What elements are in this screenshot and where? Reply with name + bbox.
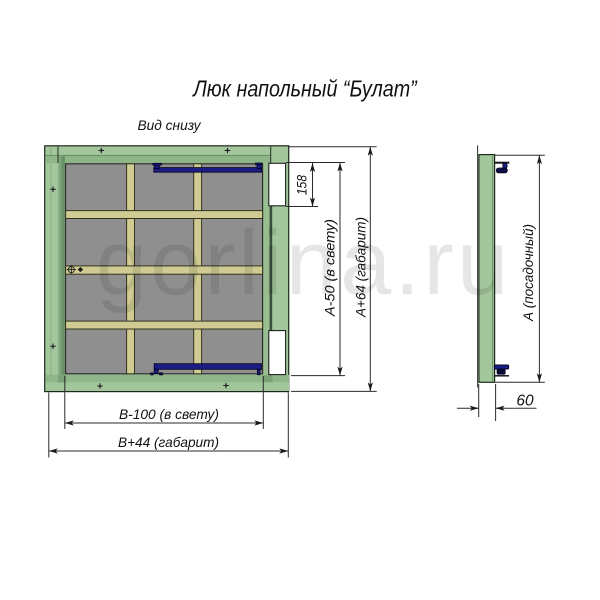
svg-text:gorlina.ru: gorlina.ru [96,212,512,314]
svg-text:В+44 (габарит): В+44 (габарит) [118,434,219,450]
svg-text:Люк напольный “Булат”: Люк напольный “Булат” [192,76,418,102]
svg-text:60: 60 [516,393,534,410]
svg-text:В-100 (в свету): В-100 (в свету) [119,406,219,422]
svg-text:158: 158 [294,175,310,195]
svg-text:Вид снизу: Вид снизу [138,118,202,133]
svg-text:А (посадочный): А (посадочный) [521,224,536,322]
